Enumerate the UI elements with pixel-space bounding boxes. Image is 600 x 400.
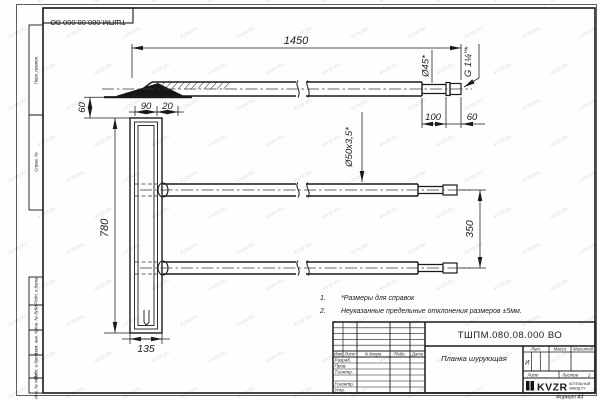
tb-header-izm: Изм [334, 351, 342, 356]
note-2-text: Неуказанные предельные отклонения размер… [341, 307, 522, 315]
plank-outline [130, 118, 162, 333]
note-2-number: 2. [319, 308, 326, 315]
logo-mark [526, 381, 530, 391]
tb-header-data: Дата [411, 351, 424, 356]
gusset-bracket [104, 83, 230, 98]
top-stamp-text: ТШПМ.080.08.000 ВО [50, 18, 126, 27]
dim-pipe: Ø50х3,5* [344, 127, 355, 168]
tube-bottom [135, 261, 470, 276]
logo-mark [531, 381, 535, 391]
tb-row-nkontr: Н.контр. [335, 382, 354, 387]
tb-row-utv: Утв. [335, 388, 345, 393]
dim-90: 90 [141, 101, 152, 112]
margin-label: Инв. № дубл. [34, 304, 39, 330]
margin-label: Подп. и дата [34, 277, 39, 305]
logo-subtext-2: ЗАВОД РУ [569, 387, 586, 391]
dim-60-right: 60 [467, 112, 478, 123]
drawing-svg: ТШПМ.080.08.000 ВО Перв. примен. Справ. … [0, 0, 600, 400]
margin-label: Инв. № подл. [34, 372, 39, 399]
tb-sheets-label: Листов [561, 373, 578, 378]
dim-780: 780 [99, 218, 111, 237]
tb-header-list: Лист [343, 351, 355, 356]
note-1-number: 1. [320, 295, 326, 302]
tb-lit-label: Лит. [530, 347, 541, 352]
front-view [102, 81, 472, 334]
tb-mass-label: Масса [554, 347, 567, 352]
logo-subtext-1: КОТЕЛЬНЫЙ [569, 382, 591, 386]
note-1-text: *Размеры для справок [341, 294, 415, 302]
tb-header-podp: Подп. [394, 351, 405, 356]
tb-header-doc: N докум. [365, 351, 382, 356]
margin-label: Справ. № [34, 152, 39, 172]
logo-text: KVZR [537, 382, 568, 394]
tb-scale-label: Масштаб [573, 347, 594, 352]
tb-designation: ТШПМ.080.08.000 ВО [458, 330, 563, 341]
tb-sheets-value: 1 [588, 373, 591, 378]
dim-60-left: 60 [77, 102, 88, 113]
tb-row-prov: Пров. [335, 364, 347, 369]
dim-1450: 1450 [284, 35, 309, 47]
dim-20: 20 [161, 101, 173, 112]
dim-350: 350 [464, 220, 476, 238]
drawing-sheet: KVZR.RUKVZR.RUKVZR.RUKVZR.RUKVZR.RUKVZR.… [0, 0, 600, 400]
tb-row-razrab: Разраб. [335, 358, 352, 363]
left-margin-cells: Перв. примен. Справ. № Подп. и дата Инв.… [29, 25, 43, 399]
tb-lit-value: И [525, 361, 530, 367]
margin-label: Перв. примен. [34, 56, 39, 85]
dim-dia45: Ø45* [421, 55, 432, 78]
margin-label: Взам. инв. № [34, 329, 39, 356]
kvzr-logo: KVZR КОТЕЛЬНЫЙ ЗАВОД РУ [526, 381, 591, 394]
format-label: Формат А3 [556, 395, 584, 400]
tb-part-name: Планка шурующая [441, 354, 507, 363]
tube-middle [135, 183, 470, 198]
tb-sheet-label: Лист [526, 373, 538, 378]
tb-row-tkontr: Т.контр. [335, 370, 354, 375]
dim-thread: G 1¼"* [463, 47, 474, 78]
dim-135: 135 [137, 343, 155, 355]
notes: 1. *Размеры для справок 2. Неуказанные п… [319, 294, 522, 315]
dim-100: 100 [425, 112, 442, 123]
title-block: ТШПМ.080.08.000 ВО Планка шурующая Изм Л… [333, 322, 595, 394]
